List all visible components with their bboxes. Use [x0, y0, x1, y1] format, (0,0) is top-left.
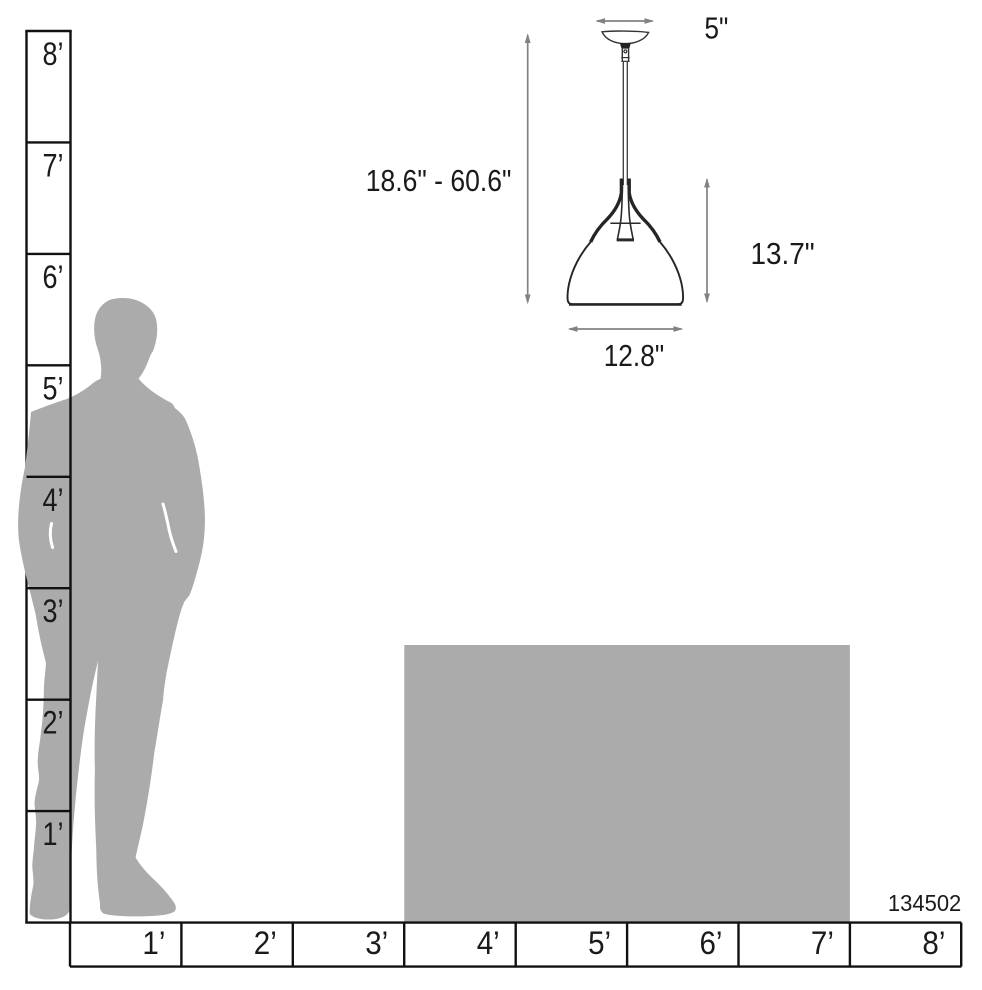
- svg-text:1’: 1’: [142, 925, 165, 961]
- svg-text:5": 5": [704, 11, 728, 46]
- svg-text:8’: 8’: [43, 36, 64, 72]
- svg-text:3’: 3’: [365, 925, 388, 961]
- svg-text:3’: 3’: [43, 593, 64, 629]
- svg-text:4’: 4’: [477, 925, 500, 961]
- svg-text:6’: 6’: [43, 259, 64, 295]
- svg-text:5’: 5’: [588, 925, 611, 961]
- svg-text:13.7": 13.7": [751, 236, 815, 271]
- svg-text:18.6" - 60.6": 18.6" - 60.6": [366, 163, 512, 198]
- svg-text:7’: 7’: [43, 147, 64, 183]
- svg-text:7’: 7’: [811, 925, 834, 961]
- svg-text:4’: 4’: [43, 482, 64, 518]
- svg-text:6’: 6’: [700, 925, 723, 961]
- svg-text:1’: 1’: [43, 816, 64, 852]
- svg-text:12.8": 12.8": [604, 338, 665, 373]
- svg-text:5’: 5’: [43, 370, 64, 406]
- svg-text:2’: 2’: [43, 705, 64, 741]
- svg-text:2’: 2’: [254, 925, 277, 961]
- svg-text:134502: 134502: [888, 890, 961, 916]
- svg-text:8’: 8’: [922, 925, 945, 961]
